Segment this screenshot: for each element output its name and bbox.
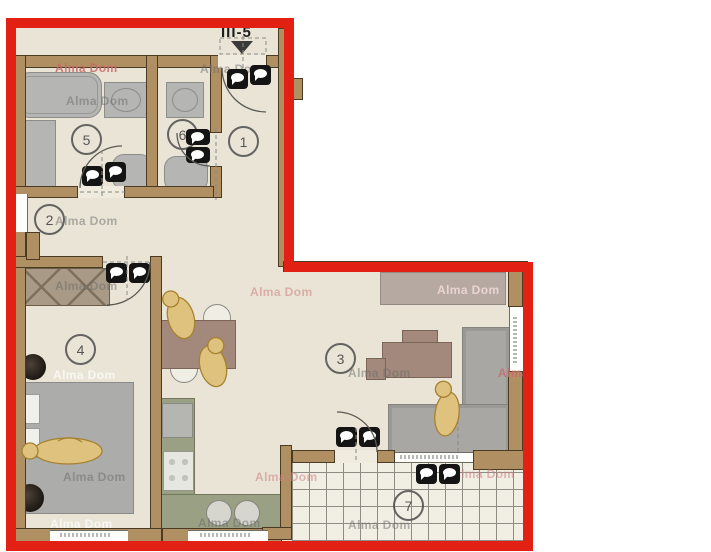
window-left — [14, 194, 28, 232]
wall — [292, 450, 335, 463]
fridge — [162, 403, 193, 438]
speech-bubble-icon — [416, 464, 437, 484]
room-number: 7 — [405, 498, 413, 514]
floor-plan: III-5 1 2 3 4 5 6 7 Alma Dom Alma Dom Al… — [0, 0, 711, 552]
wall — [508, 267, 523, 307]
room-number: 1 — [240, 134, 248, 150]
wall-pillar — [26, 232, 40, 260]
speech-bubble-icon — [359, 427, 380, 447]
dimension-text — [60, 533, 112, 537]
dining-table — [160, 320, 236, 369]
watermark: Alma Dom — [250, 285, 313, 299]
wall-bedroom-kitchen — [150, 256, 162, 540]
speech-bubble-icon — [336, 427, 357, 447]
wall-left-outer — [14, 55, 26, 536]
watermark: Alma Dom — [348, 518, 411, 532]
room-number: 5 — [83, 132, 91, 148]
room-label-1: 1 — [228, 126, 259, 157]
dimension-text — [513, 315, 517, 363]
watermark: Alma Dom — [255, 470, 318, 484]
watermark: Alma Dom — [66, 94, 129, 108]
speech-bubble-watermark-icon — [416, 464, 460, 484]
speech-bubble-watermark-icon — [336, 427, 380, 447]
speech-bubble-icon — [250, 65, 271, 85]
entrance-arrow-icon — [231, 41, 253, 54]
wc-sink-bowl — [172, 88, 198, 112]
speech-bubble-watermark-icon — [106, 263, 150, 283]
unit-label: III-5 — [221, 24, 252, 41]
room-number: 2 — [46, 212, 54, 228]
speech-bubble-icon — [82, 166, 103, 186]
watermark: Alma Dom — [437, 283, 500, 297]
wall-living-north — [283, 261, 528, 272]
wall-nub — [291, 78, 303, 100]
room-number: 4 — [77, 342, 85, 358]
watermark: Alma Dom — [452, 467, 515, 481]
dimension-text — [400, 455, 460, 459]
watermark: Alma Dom — [348, 366, 411, 380]
wall — [146, 55, 158, 198]
speech-bubble-icon — [439, 464, 460, 484]
watermark: Alma Dom — [498, 366, 524, 380]
wall-right-upper — [278, 28, 292, 267]
speech-bubble-watermark-icon — [227, 65, 271, 85]
room-label-4: 4 — [65, 334, 96, 365]
watermark: Alma Dom — [198, 516, 261, 530]
watermark: Alma Dom — [50, 517, 113, 531]
room-number: 3 — [337, 351, 345, 367]
dimension-text — [200, 533, 252, 537]
speech-bubble-icon — [105, 162, 126, 182]
speech-bubble-icon — [227, 69, 248, 89]
wall-terrace-west — [280, 445, 292, 537]
speech-bubble-watermark-icon — [186, 129, 210, 163]
terrace-door-opening — [335, 450, 377, 463]
watermark: Alma Dom — [63, 470, 126, 484]
room-label-5: 5 — [71, 124, 102, 155]
watermark: Alma Dom — [53, 368, 116, 382]
wall — [377, 450, 395, 463]
speech-bubble-watermark-icon — [82, 162, 126, 182]
stove — [163, 451, 194, 491]
speech-bubble-icon — [106, 263, 127, 283]
wall — [124, 186, 214, 198]
watermark: Alma Dom — [55, 61, 118, 75]
speech-bubble-icon — [186, 129, 210, 145]
speech-bubble-icon — [186, 147, 210, 163]
bathroom-door-opening — [78, 186, 124, 198]
sofa-horizontal — [388, 404, 510, 456]
room-label-7: 7 — [393, 490, 424, 521]
speech-bubble-icon — [129, 263, 150, 283]
watermark: Alma Dom — [55, 214, 118, 228]
